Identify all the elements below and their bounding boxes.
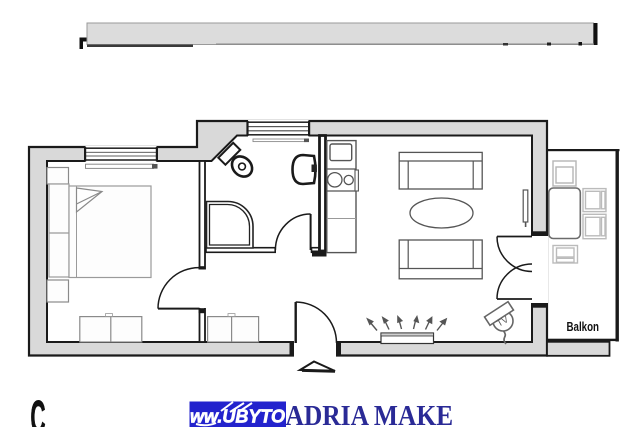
- svg-text:Balkon: Balkon: [567, 321, 599, 335]
- svg-text:ADRIA MAKE: ADRIA MAKE: [286, 400, 454, 427]
- svg-text:ww.UBYTO: ww.UBYTO: [190, 407, 285, 427]
- svg-text:C: C: [31, 392, 46, 427]
